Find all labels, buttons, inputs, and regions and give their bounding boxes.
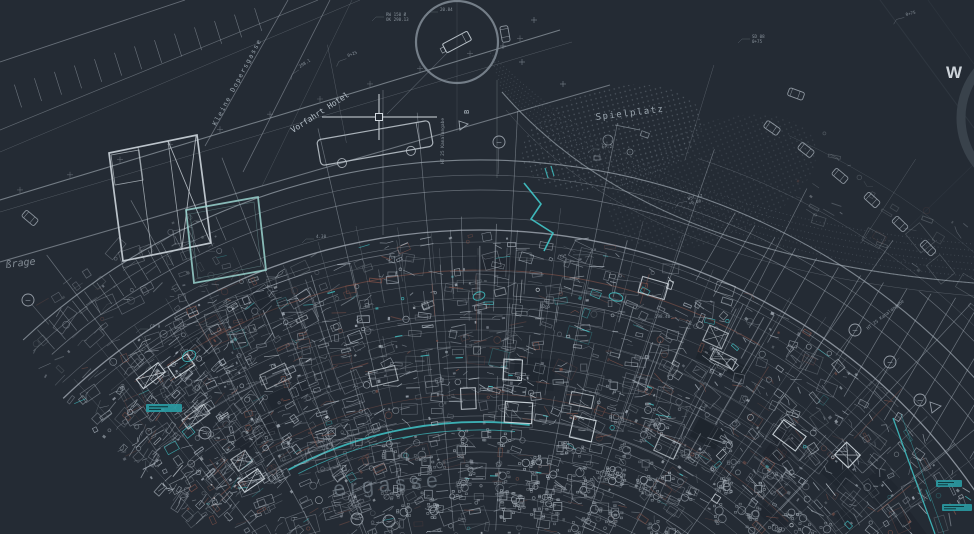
svg-text:CP 9: CP 9 [150,324,161,329]
teal-label-tag [942,504,972,511]
svg-text:EP 2: EP 2 [602,144,613,149]
svg-text:RW 150 ØOK 298.13: RW 150 ØOK 298.13 [386,12,409,22]
site-plan-drawing: RW 150 ØOK 298.1320.840+25SD 080+75WST 1… [0,0,974,534]
svg-text:12.5: 12.5 [540,304,551,309]
teal-label-tag [936,480,962,487]
svg-text:298.40: 298.40 [655,314,671,319]
label-section-b: B [463,110,471,114]
brand-logo-w: W [946,63,962,83]
svg-text:4.30: 4.30 [316,234,327,239]
teal-label-tag [146,404,182,412]
label-pipe-note-center: HT 25 Kanalangabe [440,118,446,164]
cad-canvas[interactable]: RW 150 ØOK 298.1320.840+25SD 080+75WST 1… [0,0,974,534]
svg-text:20.84: 20.84 [440,7,453,12]
